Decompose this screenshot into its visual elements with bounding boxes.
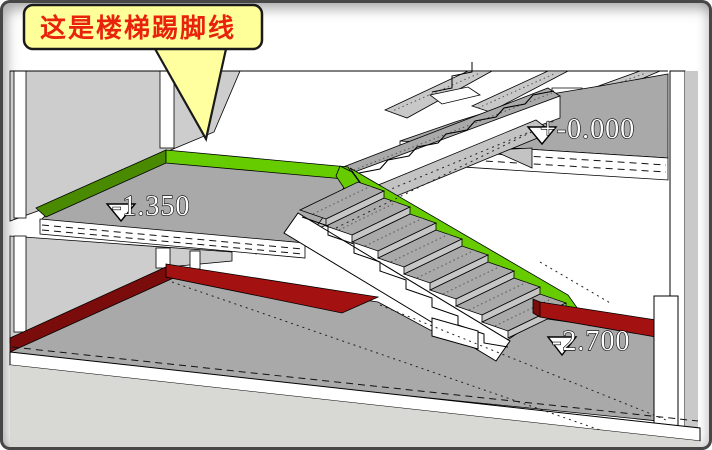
right-column — [654, 296, 678, 428]
elevation-label-top: +-0.000 — [540, 114, 635, 145]
elevation-label-bottom: -2.700 — [552, 326, 630, 357]
elevation-label-mid: -1.350 — [112, 191, 190, 222]
callout-label: 这是楼梯踢脚线 — [40, 13, 236, 43]
pilaster — [14, 71, 26, 218]
stair-scene: +-0.000 -1.350 -2.700 这是楼梯踢脚线 — [0, 0, 712, 450]
post — [190, 251, 200, 269]
stair-3d-viewport[interactable]: +-0.000 -1.350 -2.700 这是楼梯踢脚线 — [0, 0, 712, 450]
pilaster — [14, 236, 26, 332]
pilaster — [160, 71, 174, 148]
